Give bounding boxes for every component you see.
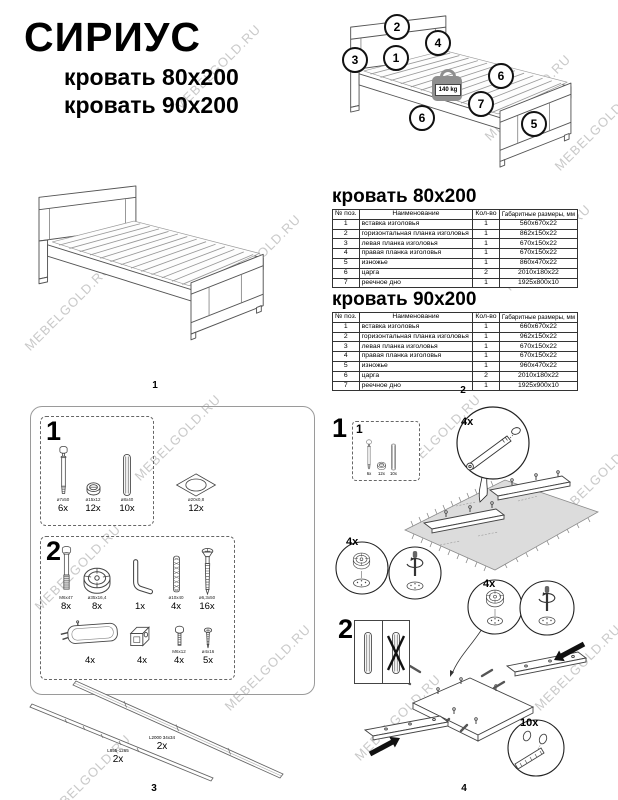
confirmat-screw-icon (201, 547, 214, 595)
bolt-m6-icon (174, 625, 185, 649)
callout-4: 4 (425, 30, 451, 56)
screwdriver-callout-circle (520, 581, 574, 635)
slat-rails-drawing (25, 668, 313, 788)
mini-item-dowel: 10x (390, 443, 397, 477)
cell-name: левая планка изголовья (359, 342, 473, 352)
assembly-step-1-number: 1 (332, 413, 347, 444)
callout-2: 2 (384, 14, 410, 40)
cell-size: 1925х900х10 (499, 381, 577, 391)
cell-size: 560х670х22 (499, 219, 577, 229)
cell-qty: 1 (473, 219, 500, 229)
cell-qty: 1 (473, 229, 500, 239)
cell-qty: 1 (473, 278, 500, 288)
cell-name: царга (359, 268, 473, 278)
dowel-instruction-box (354, 620, 410, 684)
cell-name: вставка изголовья (359, 219, 473, 229)
dowel-wrong-cell (382, 621, 410, 683)
hardware-count-label: 4x (174, 655, 184, 666)
cell-name: реечное дно (359, 278, 473, 288)
cell-pos: 2 (333, 229, 360, 239)
hardware-item-plastic-bracket: 4x (58, 614, 122, 666)
cell-pos: 3 (333, 342, 360, 352)
hardware-step-2-number: 2 (46, 536, 61, 567)
cam-lock-icon (376, 461, 387, 471)
cell-name: горизонтальная планка изголовья (359, 332, 473, 342)
table-row: 6царга22010х180х22 (333, 268, 578, 278)
cell-name: правая планка изголовья (359, 352, 473, 362)
mini-item-bolt: 6x (365, 439, 373, 477)
hardware-item-felt-pad: ø20х0,8 12x (172, 452, 220, 514)
col-qty: Кол-во (473, 313, 500, 323)
wood-dowel-icon (390, 443, 397, 471)
hardware-item-threaded-dowel: ø10х40 4x (159, 544, 193, 612)
bed-overview-diagram: 2 4 1 3 6 7 6 5 140 kg (332, 12, 614, 186)
page-number-1: 1 (148, 380, 162, 391)
table-row: 5изножье1960х470х22 (333, 361, 578, 371)
table-header-row: № поз. Наименование Кол-во Габаритные ра… (333, 210, 578, 220)
cell-qty: 1 (473, 381, 500, 391)
parts-table-80x200: № поз. Наименование Кол-во Габаритные ра… (332, 209, 578, 288)
hardware-count-label: 12x (188, 503, 203, 514)
table-row: 1вставка изголовья1560х670х22 (333, 219, 578, 229)
page-number-2: 2 (456, 385, 470, 396)
cell-size: 862х150х22 (499, 229, 577, 239)
max-load-badge: 140 kg (432, 76, 462, 101)
cell-name: вставка изголовья (359, 322, 473, 332)
col-size: Габаритные размеры, мм (499, 210, 577, 220)
parts-table-90x200: № поз. Наименование Кол-во Габаритные ра… (332, 312, 578, 391)
cell-qty: 2 (473, 268, 500, 278)
allen-key-icon (127, 558, 153, 595)
cell-pos: 2 (333, 332, 360, 342)
cell-pos: 1 (333, 322, 360, 332)
callout-6-left: 6 (409, 105, 435, 131)
table-row: 3левая планка изголовья1670х150х22 (333, 239, 578, 249)
table-title-80x200: кровать 80x200 (332, 186, 476, 208)
subtitle-bed-80x200: кровать 80x200 (64, 64, 239, 91)
table-row: 4правая планка изголовья1670х150х22 (333, 352, 578, 362)
table-row: 1вставка изголовья1660х670х22 (333, 322, 578, 332)
table-row: 5изножье1860х470х22 (333, 258, 578, 268)
cell-size: 660х670х22 (499, 322, 577, 332)
cell-qty: 1 (473, 352, 500, 362)
cell-size: 960х470х22 (499, 361, 577, 371)
hardware-count-label: 4x (85, 655, 95, 666)
hardware-count-label: 10x (119, 503, 134, 514)
hardware-step-1-number: 1 (46, 416, 61, 447)
cell-pos: 3 (333, 239, 360, 249)
callout-6-right: 6 (488, 63, 514, 89)
hardware-count-label: 8x (92, 601, 102, 612)
cell-size: 860х470х22 (499, 258, 577, 268)
bolt-callout-count: 4x (461, 416, 473, 428)
table-row: 6царга22010х180х22 (333, 371, 578, 381)
table-row: 4правая планка изголовья1670х150х22 (333, 249, 578, 259)
dowel-correct-icon (356, 624, 380, 680)
mini-count-label: 12x (378, 471, 385, 477)
mini-count-label: 6x (367, 471, 372, 477)
assembly-step-1-parts-box: 1 6x 12x 10x (352, 421, 420, 481)
cell-size: 2010х180х22 (499, 268, 577, 278)
screw-small-icon (203, 627, 213, 649)
table-row: 2горизонтальная планка изголовья1862х150… (333, 229, 578, 239)
cell-pos: 7 (333, 278, 360, 288)
hardware-count-label: 16x (199, 601, 214, 612)
cell-pos: 5 (333, 361, 360, 371)
cell-name: изножье (359, 361, 473, 371)
plastic-bracket-icon (58, 619, 122, 649)
col-pos: № поз. (333, 313, 360, 323)
callout-3: 3 (342, 47, 368, 73)
cell-name: изножье (359, 258, 473, 268)
callout-1: 1 (383, 45, 409, 71)
cam-callout-count: 4x (346, 536, 358, 548)
hardware-count-label: 4x (137, 655, 147, 666)
assembly-instructions-page: MEBELGOLD.RU MEBELGOLD.RU MEBELGOLD.RU M… (0, 0, 618, 800)
page-title: СИРИУС (24, 14, 201, 61)
hardware-item-allen-key: 1x (123, 544, 157, 612)
cell-name: царга (359, 371, 473, 381)
hardware-count-label: 5x (203, 655, 213, 666)
cell-pos: 6 (333, 371, 360, 381)
cell-pos: 4 (333, 249, 360, 259)
rail-l855-count: 2x (83, 754, 153, 765)
cell-pos: 5 (333, 258, 360, 268)
cam-lock-icon (85, 481, 102, 497)
cell-pos: 7 (333, 381, 360, 391)
threaded-dowel-icon (171, 553, 182, 595)
assembly-step-1-scene: 1 1 6x 12x 10x (330, 405, 618, 605)
col-name: Наименование (359, 313, 473, 323)
cell-size: 670х150х22 (499, 352, 577, 362)
bed-perspective-drawing (20, 182, 305, 358)
cell-qty: 1 (473, 239, 500, 249)
dowel-correct-cell (355, 621, 382, 683)
parts-box-number: 1 (356, 422, 363, 436)
headboard-plank-right (507, 652, 586, 676)
cell-size: 670х150х22 (499, 342, 577, 352)
cam-lock-large-icon (82, 565, 112, 595)
cell-qty: 1 (473, 322, 500, 332)
col-pos: № поз. (333, 210, 360, 220)
hardware-item-cam-lock-large: ø35х16,4 8x (80, 544, 114, 612)
cell-qty: 1 (473, 361, 500, 371)
dowel-wrong-icon (384, 624, 408, 680)
assembly-step-2-number: 2 (338, 614, 353, 645)
cell-size: 670х150х22 (499, 249, 577, 259)
cam-callout-count: 4x (483, 578, 495, 590)
dowel-callout-count: 10x (520, 717, 538, 729)
cell-pos: 6 (333, 268, 360, 278)
mini-item-cam: 12x (376, 461, 387, 477)
table-row: 2горизонтальная планка изголовья1962х150… (333, 332, 578, 342)
cell-qty: 1 (473, 332, 500, 342)
hardware-item-corner-block: 4x (125, 614, 159, 666)
cell-qty: 1 (473, 342, 500, 352)
hardware-count-label: 1x (135, 601, 145, 612)
hardware-count-label: 4x (171, 601, 181, 612)
cell-size: 2010х180х22 (499, 371, 577, 381)
minifix-bolt-icon (365, 439, 373, 471)
table-title-90x200: кровать 90x200 (332, 289, 476, 311)
col-name: Наименование (359, 210, 473, 220)
cell-size: 670х150х22 (499, 239, 577, 249)
callout-5: 5 (521, 111, 547, 137)
hardware-item-cam-lock: ø15х12 12x (76, 428, 110, 514)
assembly-step-2-scene: 2 (330, 578, 618, 794)
cell-pos: 1 (333, 219, 360, 229)
table-row: 7реечное дно11925х800х10 (333, 278, 578, 288)
minifix-bolt-icon (57, 445, 70, 497)
subtitle-bed-90x200: кровать 90x200 (64, 92, 239, 119)
col-qty: Кол-во (473, 210, 500, 220)
wood-dowel-icon (122, 453, 132, 497)
cell-qty: 1 (473, 249, 500, 259)
hardware-item-wood-dowel: ø8х40 10x (110, 428, 144, 514)
max-load-label: 140 kg (435, 84, 461, 96)
felt-pad-icon (174, 473, 218, 497)
table-header-row: № поз. Наименование Кол-во Габаритные ра… (333, 313, 578, 323)
hardware-count-label: 6x (58, 503, 68, 514)
callout-7: 7 (468, 91, 494, 117)
cell-size: 1925х800х10 (499, 278, 577, 288)
step-2-illustration (330, 578, 618, 794)
cell-name: левая планка изголовья (359, 239, 473, 249)
cell-qty: 1 (473, 258, 500, 268)
cell-qty: 2 (473, 371, 500, 381)
cell-name: правая планка изголовья (359, 249, 473, 259)
rail-l855-label: L855-1265 (83, 748, 153, 753)
page-number-3: 3 (147, 783, 161, 794)
page-number-4: 4 (457, 783, 471, 794)
mini-count-label: 10x (390, 471, 397, 477)
hardware-count-label: 8x (61, 601, 71, 612)
table-row: 3левая планка изголовья1670х150х22 (333, 342, 578, 352)
headboard-plank-left (365, 716, 448, 740)
hardware-item-screw-small: ø4х16 5x (191, 614, 225, 666)
cell-name: горизонтальная планка изголовья (359, 229, 473, 239)
col-size: Габаритные размеры, мм (499, 313, 577, 323)
hardware-count-label: 12x (85, 503, 100, 514)
table-row: 7реечное дно11925х900х10 (333, 381, 578, 391)
rail-l2000-label: L2000 34х34 (127, 735, 197, 740)
cell-size: 962х150х22 (499, 332, 577, 342)
cell-pos: 4 (333, 352, 360, 362)
hardware-item-confirmat-screw: ø6,3х50 16x (190, 544, 224, 612)
corner-block-icon (127, 623, 157, 649)
